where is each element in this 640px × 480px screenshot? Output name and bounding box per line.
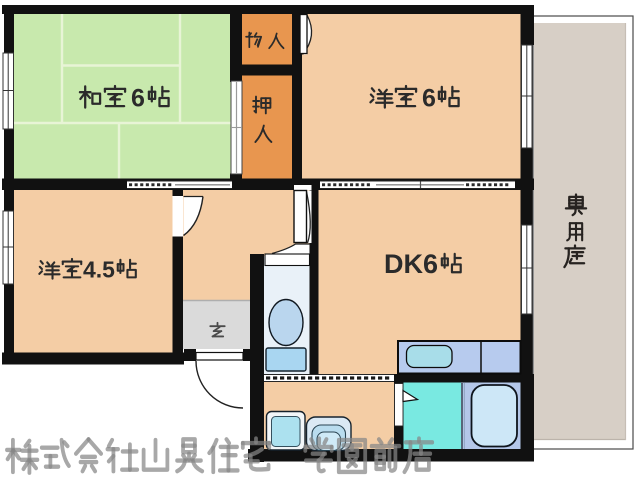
svg-text:6: 6 (131, 85, 145, 113)
svg-text:DK6: DK6 (384, 249, 438, 279)
svg-text:4.5: 4.5 (83, 257, 115, 283)
svg-text:6: 6 (422, 85, 436, 113)
